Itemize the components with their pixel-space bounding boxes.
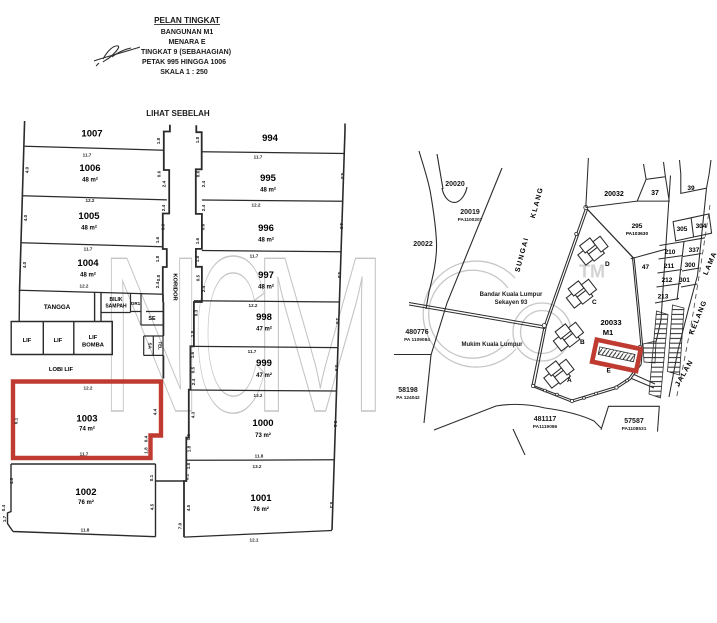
svg-text:1.6: 1.6 xyxy=(155,236,160,243)
svg-text:0.1: 0.1 xyxy=(185,473,190,480)
svg-text:48 m²: 48 m² xyxy=(80,272,96,279)
svg-text:M1: M1 xyxy=(603,328,614,337)
svg-text:20032: 20032 xyxy=(604,191,624,198)
svg-text:47 m²: 47 m² xyxy=(256,326,272,333)
svg-text:PETAK 995 HINGGA 1006: PETAK 995 HINGGA 1006 xyxy=(142,59,226,66)
svg-text:5.9: 5.9 xyxy=(334,365,339,372)
svg-text:0.6: 0.6 xyxy=(201,223,206,230)
svg-text:1.8: 1.8 xyxy=(187,445,192,452)
svg-text:995: 995 xyxy=(260,173,277,184)
svg-text:C: C xyxy=(592,299,597,306)
svg-text:4.0: 4.0 xyxy=(337,272,342,279)
svg-text:3.0: 3.0 xyxy=(335,318,340,325)
svg-text:11.7: 11.7 xyxy=(84,247,93,252)
svg-text:20019: 20019 xyxy=(460,209,480,216)
svg-text:481117: 481117 xyxy=(534,416,557,423)
svg-text:2.4: 2.4 xyxy=(201,180,206,187)
svg-text:13.2: 13.2 xyxy=(254,393,263,398)
svg-text:996: 996 xyxy=(258,223,274,234)
svg-text:11.8: 11.8 xyxy=(255,454,264,459)
svg-text:76 m²: 76 m² xyxy=(253,506,269,513)
svg-text:74 m²: 74 m² xyxy=(79,426,95,433)
svg-text:1.8: 1.8 xyxy=(195,255,200,262)
svg-text:0.1: 0.1 xyxy=(149,474,154,481)
svg-text:11.7: 11.7 xyxy=(83,153,92,158)
svg-text:TM: TM xyxy=(579,262,605,282)
svg-text:KLANG: KLANG xyxy=(530,186,545,219)
svg-text:480776: 480776 xyxy=(405,329,428,336)
svg-text:1.8: 1.8 xyxy=(156,137,161,144)
svg-text:PA103630: PA103630 xyxy=(626,231,649,237)
svg-text:4.0: 4.0 xyxy=(22,261,27,268)
svg-text:12.2: 12.2 xyxy=(80,284,89,289)
svg-text:73 m²: 73 m² xyxy=(255,432,271,439)
svg-text:SA: SA xyxy=(148,343,153,350)
svg-text:BANGUNAN M1: BANGUNAN M1 xyxy=(161,29,214,36)
svg-text:211: 211 xyxy=(664,263,675,270)
svg-text:0.6: 0.6 xyxy=(196,170,201,177)
svg-text:39: 39 xyxy=(687,185,695,192)
svg-text:0.6: 0.6 xyxy=(186,433,191,440)
svg-text:57587: 57587 xyxy=(624,418,644,425)
svg-text:210: 210 xyxy=(665,249,676,256)
svg-text:BILIK: BILIK xyxy=(109,297,122,303)
svg-text:212: 212 xyxy=(662,277,673,284)
svg-text:1.7: 1.7 xyxy=(2,515,7,522)
svg-text:11.8: 11.8 xyxy=(81,528,90,533)
svg-text:20022: 20022 xyxy=(413,241,433,248)
svg-text:0.5: 0.5 xyxy=(191,366,196,373)
svg-text:PA1108531: PA1108531 xyxy=(622,426,647,432)
svg-text:4.5: 4.5 xyxy=(186,504,191,511)
svg-text:0.4: 0.4 xyxy=(1,504,6,511)
svg-text:12.2: 12.2 xyxy=(84,386,93,391)
svg-text:2.4: 2.4 xyxy=(201,204,206,211)
svg-text:47: 47 xyxy=(642,264,650,271)
svg-text:11.7: 11.7 xyxy=(80,452,89,457)
svg-text:0.6: 0.6 xyxy=(157,170,162,177)
svg-text:1002: 1002 xyxy=(75,487,96,498)
svg-text:1.8: 1.8 xyxy=(195,136,200,143)
svg-text:997: 997 xyxy=(258,270,274,281)
svg-text:20020: 20020 xyxy=(445,181,465,188)
svg-text:4.0: 4.0 xyxy=(340,173,345,180)
svg-text:Mukim Kuala Lumpur: Mukim Kuala Lumpur xyxy=(461,342,523,348)
svg-text:A: A xyxy=(567,377,572,384)
svg-text:12.1: 12.1 xyxy=(250,538,259,543)
svg-text:LIF: LIF xyxy=(54,338,63,344)
svg-text:2.4: 2.4 xyxy=(162,180,167,187)
svg-text:2.4: 2.4 xyxy=(155,281,160,288)
svg-text:11.7: 11.7 xyxy=(254,155,263,160)
svg-text:N: N xyxy=(100,210,204,458)
svg-text:305: 305 xyxy=(677,226,688,233)
svg-text:999: 999 xyxy=(256,358,272,369)
svg-text:300: 300 xyxy=(685,262,696,269)
svg-text:4.3: 4.3 xyxy=(191,411,196,418)
svg-text:1000: 1000 xyxy=(252,418,273,429)
svg-text:1.8: 1.8 xyxy=(155,255,160,262)
svg-text:KORIDOR: KORIDOR xyxy=(172,273,178,301)
svg-text:0.6: 0.6 xyxy=(161,223,166,230)
svg-text:PA1100207: PA1100207 xyxy=(458,217,483,223)
svg-text:11.7: 11.7 xyxy=(250,254,259,259)
svg-text:SUNGAI: SUNGAI xyxy=(514,236,530,273)
svg-text:5.1: 5.1 xyxy=(333,421,338,428)
svg-text:994: 994 xyxy=(262,133,279,144)
svg-text:Bandar Kuala Lumpur: Bandar Kuala Lumpur xyxy=(480,292,543,298)
svg-text:5.3: 5.3 xyxy=(329,502,334,509)
svg-text:1005: 1005 xyxy=(78,211,100,222)
svg-text:37: 37 xyxy=(651,190,659,197)
svg-text:1.6: 1.6 xyxy=(190,351,195,358)
svg-text:58198: 58198 xyxy=(398,387,418,394)
svg-text:B: B xyxy=(580,339,585,346)
svg-text:1.8: 1.8 xyxy=(190,330,195,337)
svg-text:295: 295 xyxy=(632,223,643,230)
svg-text:LIF: LIF xyxy=(89,335,98,341)
svg-text:998: 998 xyxy=(256,312,272,323)
svg-text:11.7: 11.7 xyxy=(248,349,257,354)
svg-text:LAMA: LAMA xyxy=(703,251,717,277)
svg-text:1.8: 1.8 xyxy=(143,447,148,454)
svg-text:4.5: 4.5 xyxy=(150,503,155,510)
svg-text:1003: 1003 xyxy=(76,414,97,425)
svg-text:4.0: 4.0 xyxy=(23,214,28,221)
svg-text:BOMBA: BOMBA xyxy=(82,343,105,349)
svg-text:PA 1109084: PA 1109084 xyxy=(404,337,430,343)
svg-text:PA1119086: PA1119086 xyxy=(533,424,558,430)
svg-text:1004: 1004 xyxy=(77,258,99,269)
svg-text:0.4: 0.4 xyxy=(143,435,148,442)
svg-text:4.4: 4.4 xyxy=(153,408,158,415)
svg-text:12.2: 12.2 xyxy=(249,303,258,308)
svg-text:PELAN TINGKAT: PELAN TINGKAT xyxy=(154,16,220,25)
svg-text:76 m²: 76 m² xyxy=(78,499,94,506)
svg-text:1006: 1006 xyxy=(79,163,100,174)
svg-text:KELANG: KELANG xyxy=(688,299,708,336)
svg-text:2.4: 2.4 xyxy=(161,204,166,211)
svg-text:20033: 20033 xyxy=(600,318,621,327)
svg-text:LIF: LIF xyxy=(23,338,32,344)
svg-text:48 m²: 48 m² xyxy=(260,187,276,194)
svg-text:1.6: 1.6 xyxy=(195,237,200,244)
svg-text:213: 213 xyxy=(658,294,669,301)
svg-text:0.5: 0.5 xyxy=(196,274,201,281)
svg-text:SAMPAH: SAMPAH xyxy=(105,304,127,310)
svg-text:LOBI LIF: LOBI LIF xyxy=(49,367,74,373)
svg-text:OR1: OR1 xyxy=(131,301,141,306)
svg-text:7.0: 7.0 xyxy=(178,522,183,529)
svg-text:12.2: 12.2 xyxy=(86,198,95,203)
svg-text:TEL: TEL xyxy=(157,342,162,351)
svg-text:TINGKAT 9 (SEBAHAGIAN): TINGKAT 9 (SEBAHAGIAN) xyxy=(141,49,231,56)
svg-text:48 m²: 48 m² xyxy=(258,284,274,291)
svg-text:0.8: 0.8 xyxy=(156,274,161,281)
svg-text:TANGGA: TANGGA xyxy=(44,304,71,311)
svg-text:PA 124042: PA 124042 xyxy=(396,395,420,401)
svg-text:Sekayen 93: Sekayen 93 xyxy=(495,300,528,306)
svg-text:E: E xyxy=(607,368,612,375)
svg-text:4.0: 4.0 xyxy=(339,223,344,230)
svg-text:9.3: 9.3 xyxy=(194,309,199,316)
svg-text:SKALA 1 : 250: SKALA 1 : 250 xyxy=(160,69,208,76)
svg-text:304: 304 xyxy=(696,223,707,230)
svg-text:6.1: 6.1 xyxy=(14,417,19,424)
svg-text:2.4: 2.4 xyxy=(201,285,206,292)
svg-text:MENARA E: MENARA E xyxy=(168,39,205,46)
svg-text:48 m²: 48 m² xyxy=(81,225,97,232)
svg-text:1001: 1001 xyxy=(250,493,272,504)
svg-text:48 m²: 48 m² xyxy=(258,237,274,244)
svg-text:13.2: 13.2 xyxy=(253,464,262,469)
svg-text:4.8: 4.8 xyxy=(9,477,14,484)
svg-text:1.8: 1.8 xyxy=(186,462,191,469)
svg-text:1007: 1007 xyxy=(81,129,102,140)
svg-text:4.0: 4.0 xyxy=(25,166,30,173)
svg-text:47 m²: 47 m² xyxy=(256,372,272,379)
svg-text:SE: SE xyxy=(148,316,156,322)
svg-text:48 m²: 48 m² xyxy=(82,177,98,184)
svg-text:301: 301 xyxy=(679,277,690,284)
svg-text:LIHAT SEBELAH: LIHAT SEBELAH xyxy=(146,109,210,118)
svg-text:12.2: 12.2 xyxy=(252,203,261,208)
svg-text:D: D xyxy=(605,261,610,268)
svg-text:337: 337 xyxy=(689,247,700,254)
svg-text:2.4: 2.4 xyxy=(191,378,196,385)
